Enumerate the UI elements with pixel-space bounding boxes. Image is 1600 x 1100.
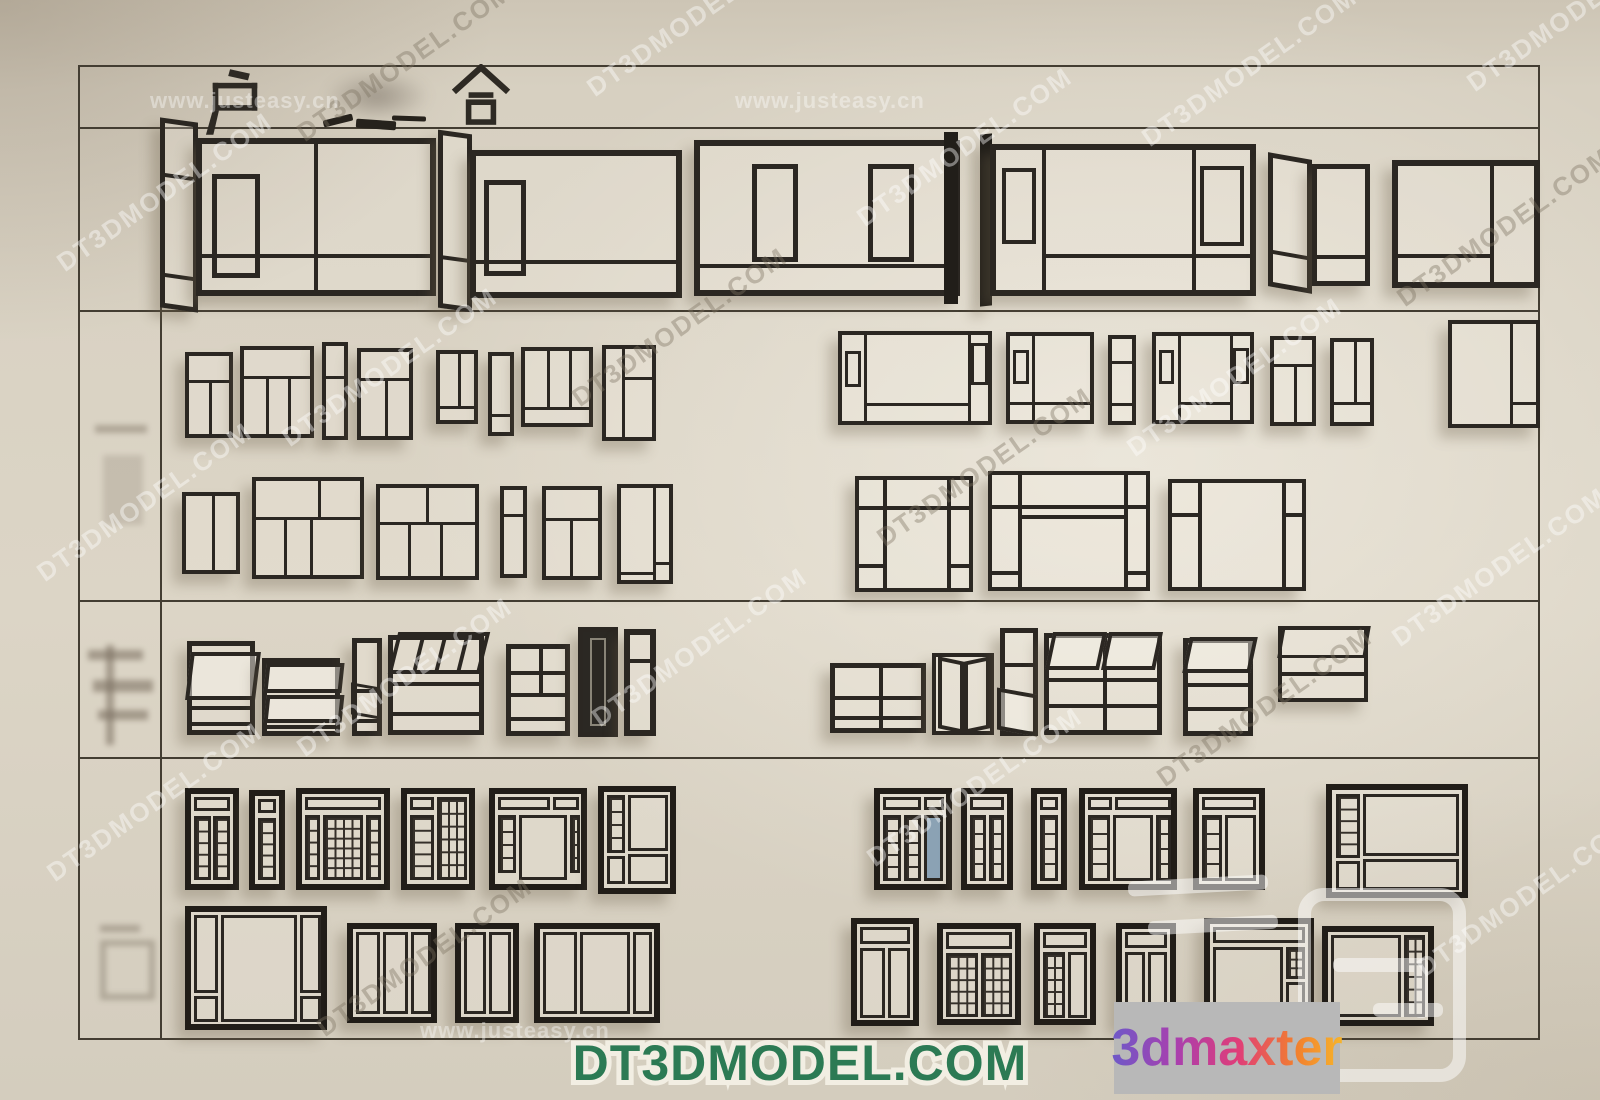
badge-3dmaxter-text: 3dmaxter <box>1111 1018 1342 1078</box>
footer-logo-text: DT3DMODEL.COM <box>0 1034 1600 1092</box>
catalog-sheet: DT3DMODEL.COM DT3DMODEL.COM 3dmaxter DT3… <box>0 0 1600 1100</box>
overlay-logos <box>0 0 1600 1100</box>
badge-3dmaxter: 3dmaxter <box>1114 1002 1340 1094</box>
footer-logo: DT3DMODEL.COM DT3DMODEL.COM <box>0 1034 1600 1094</box>
